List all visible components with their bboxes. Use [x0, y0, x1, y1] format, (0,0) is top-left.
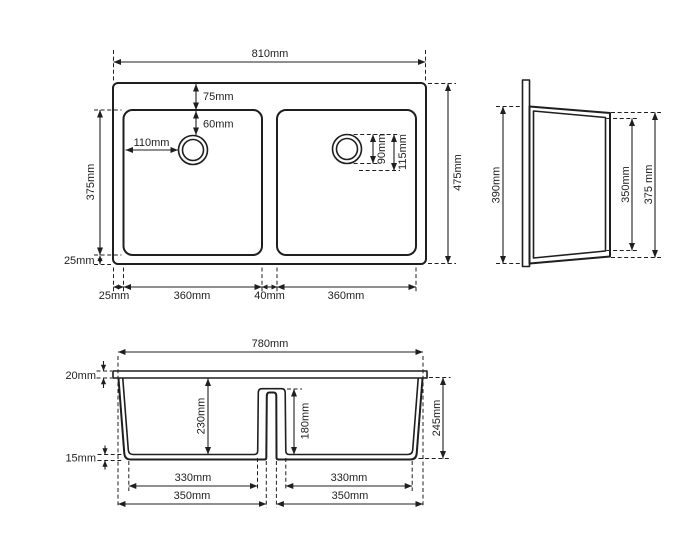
dim-front-bottom-rows: 330mm 330mm 350mm 350mm	[118, 458, 423, 508]
dim-label-bowl2-width: 360mm	[328, 290, 365, 302]
front-shell-inner	[123, 379, 418, 455]
dim-label-front-height: 245mm	[431, 400, 443, 437]
dim-label-front-bowl-depth: 230mm	[196, 398, 208, 435]
dim-top-width: 810mm	[114, 48, 426, 81]
dim-label-front-divider-depth: 180mm	[300, 403, 312, 440]
dim-label-divider: 40mm	[254, 290, 285, 302]
drawing-canvas: 810mm 475mm 75mm 60mm 110mm	[0, 0, 700, 560]
dim-side-inner: 350mm	[607, 119, 640, 251]
dim-bowl-depth: 375mm	[85, 110, 122, 255]
front-rim-band	[113, 371, 427, 378]
dim-label-front-rim: 20mm	[65, 370, 96, 382]
dim-front-divider-depth: 180mm	[287, 389, 312, 455]
dim-label-side-outer: 375 mm	[643, 165, 655, 205]
dim-top-depth: 475mm	[428, 84, 464, 264]
dim-front-width: 780mm	[118, 338, 423, 507]
dim-hole-offset-x: 110mm	[126, 137, 179, 150]
side-body-outer	[530, 107, 611, 264]
dim-label-hole-d2: 115mm	[397, 134, 409, 170]
right-tap-hole	[333, 135, 362, 164]
dim-rim-bottom: 25mm	[64, 255, 111, 267]
dim-label-hole-offset-y: 60mm	[203, 119, 234, 131]
dim-label-bowl-depth: 375mm	[85, 164, 97, 201]
dim-front-bowl-depth: 230mm	[196, 379, 209, 455]
technical-drawing: 810mm 475mm 75mm 60mm 110mm	[0, 0, 700, 560]
dim-label-top-depth: 475mm	[452, 154, 464, 191]
dim-hole-offset-y: 60mm	[196, 111, 234, 135]
side-rim-flange	[523, 80, 530, 267]
dim-rim-top: 75mm	[196, 84, 234, 110]
dim-front-rim: 20mm	[65, 361, 112, 388]
dim-label-bowl2-outer: 350mm	[332, 490, 369, 502]
right-bowl-top	[277, 110, 416, 255]
dim-label-side-inner: 350mm	[620, 166, 632, 203]
front-view: 780mm 20mm 230mm 180mm	[65, 338, 450, 508]
dim-label-bowl2-inner: 330mm	[331, 472, 368, 484]
dim-label-hole-d1: 90mm	[376, 134, 388, 165]
dim-label-front-base: 15mm	[65, 453, 96, 465]
dim-label-bowl1-width: 360mm	[174, 290, 211, 302]
dim-label-front-width: 780mm	[252, 338, 289, 350]
dim-front-base: 15mm	[65, 446, 122, 470]
dim-side-height: 390mm	[491, 107, 522, 264]
dim-label-bowl1-inner: 330mm	[175, 472, 212, 484]
dim-label-bowl1-outer: 350mm	[174, 490, 211, 502]
left-tap-hole	[179, 136, 208, 165]
side-body-inner	[534, 111, 606, 258]
dim-bottom-row: 25mm 360mm 40mm 360mm	[99, 268, 416, 303]
dim-label-top-width: 810mm	[252, 48, 289, 60]
dim-side-outer: 375 mm	[611, 113, 661, 258]
dim-label-rim-top: 75mm	[203, 91, 234, 103]
left-bowl-top	[124, 110, 263, 255]
dim-label-hole-offset-x: 110mm	[134, 137, 170, 149]
top-view: 810mm 475mm 75mm 60mm 110mm	[64, 48, 464, 302]
side-view: 390mm 350mm 375 mm	[491, 80, 662, 267]
dim-label-rim-left: 25mm	[99, 290, 130, 302]
dim-label-rim-bottom: 25mm	[64, 255, 95, 267]
dim-label-side-height: 390mm	[491, 167, 503, 204]
front-shell-outer	[119, 379, 423, 460]
